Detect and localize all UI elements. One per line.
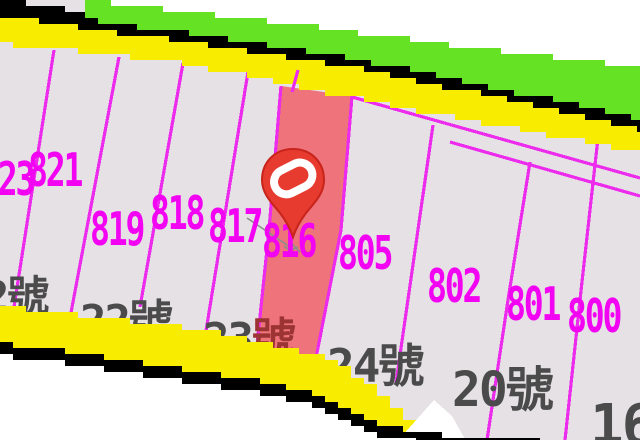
parcel-label-818: 818 <box>150 190 203 236</box>
parcel-label-821: 821 <box>28 147 81 193</box>
parcel-label-802: 802 <box>427 263 480 309</box>
parcel-label-819: 819 <box>90 206 143 252</box>
map-viewport[interactable]: 2號 22號 23號 24號 20號 16 823 821 819 818 81… <box>0 0 640 440</box>
parcel-label-800: 800 <box>567 293 620 339</box>
location-pin-icon <box>256 146 330 242</box>
location-pin[interactable] <box>256 146 330 242</box>
parcel-label-817: 817 <box>208 203 261 249</box>
parcel-label-805: 805 <box>338 230 391 276</box>
parcel-label-801: 801 <box>506 281 559 327</box>
